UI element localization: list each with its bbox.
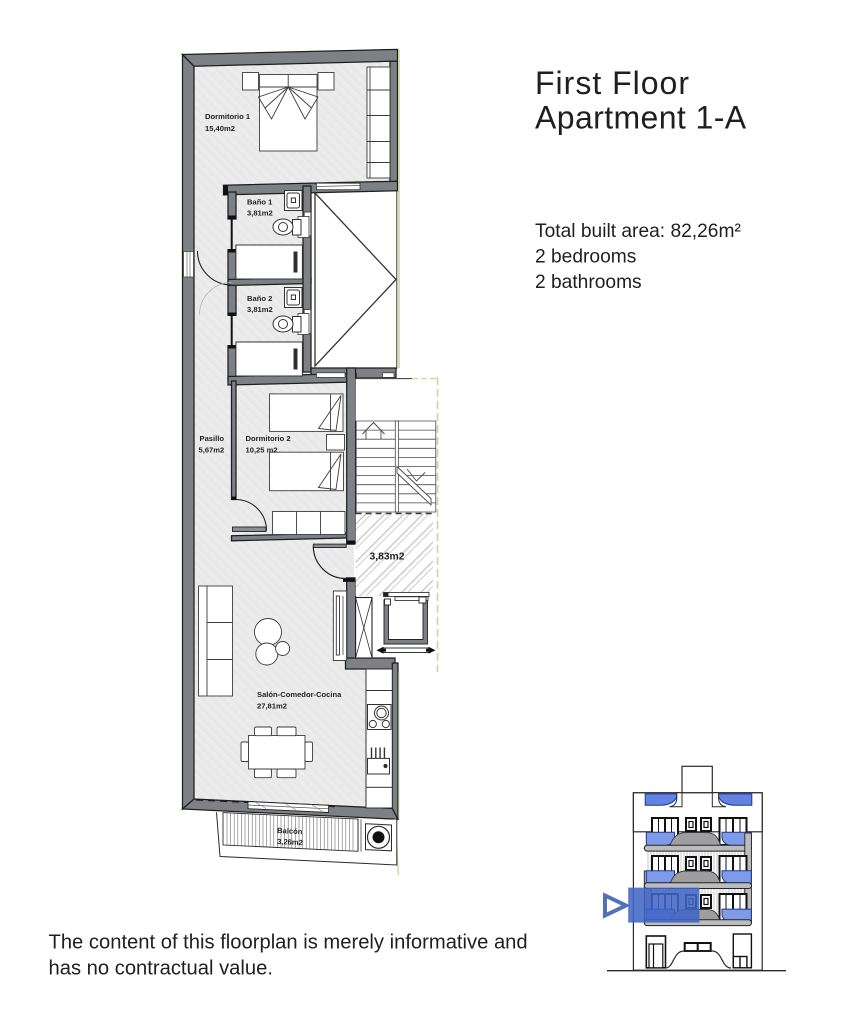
svg-text:Baño 1: Baño 1 [247, 198, 273, 207]
svg-text:Balcón: Balcón [277, 826, 303, 836]
svg-text:Dormitorio 2: Dormitorio 2 [246, 434, 291, 443]
svg-text:Pasillo: Pasillo [200, 434, 225, 443]
svg-text:Total built area: 82,26m²: Total built area: 82,26m² [535, 221, 741, 242]
svg-text:5,67m2: 5,67m2 [199, 446, 225, 455]
svg-text:27,81m2: 27,81m2 [257, 702, 287, 711]
svg-text:3,26m2: 3,26m2 [277, 837, 303, 847]
svg-text:Dormitorio 1: Dormitorio 1 [205, 112, 251, 121]
svg-text:2 bathrooms: 2 bathrooms [535, 272, 642, 293]
svg-text:Salón-Comedor-Cocina: Salón-Comedor-Cocina [257, 690, 342, 699]
svg-text:First Floor: First Floor [535, 65, 690, 101]
svg-text:3,81m2: 3,81m2 [247, 305, 273, 314]
svg-text:Baño 2: Baño 2 [247, 294, 272, 303]
svg-text:3,83m2: 3,83m2 [370, 552, 405, 563]
svg-text:The content of this floorplan: The content of this floorplan is merely … [49, 932, 528, 954]
svg-text:has no contractual value.: has no contractual value. [49, 958, 273, 980]
svg-text:Apartment 1-A: Apartment 1-A [535, 100, 747, 136]
svg-text:3,81m2: 3,81m2 [247, 209, 273, 218]
svg-text:15,40m2: 15,40m2 [205, 124, 235, 133]
svg-text:2 bedrooms: 2 bedrooms [535, 247, 636, 268]
svg-text:10,25 m2: 10,25 m2 [246, 446, 278, 455]
